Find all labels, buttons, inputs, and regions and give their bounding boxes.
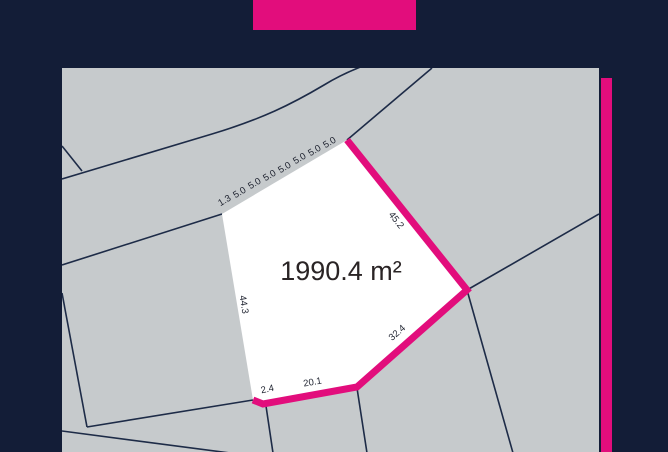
road-line-right (347, 68, 432, 140)
boundary-below-plot-left (266, 406, 273, 452)
dimension-label: 5.0 (231, 185, 248, 201)
branch-line-topleft (62, 146, 82, 171)
plot-area-label: 1990.4 m² (280, 256, 402, 286)
boundary-bottom-left (62, 431, 230, 452)
dimension-label: 5.0 (261, 168, 278, 184)
boundary-left-parcel (62, 293, 87, 427)
dimension-label: 1.3 (216, 193, 233, 209)
location-title: الجنبية (253, 0, 416, 10)
location-banner: الجنبية (253, 0, 416, 30)
boundary-below-plot-right (467, 290, 513, 452)
cadastral-map: 1.3 5.0 5.0 5.0 5.0 5.0 5.0 5.0 45.2 32.… (62, 68, 599, 452)
boundary-to-plot-bottomleft (87, 400, 253, 427)
side-accent-bar (601, 78, 612, 452)
parcel-map-svg: 1.3 5.0 5.0 5.0 5.0 5.0 5.0 5.0 45.2 32.… (62, 68, 599, 452)
dimension-label: 5.0 (246, 176, 263, 192)
ad-canvas: 1.3 5.0 5.0 5.0 5.0 5.0 5.0 5.0 45.2 32.… (0, 0, 668, 452)
boundary-right-of-plot (467, 214, 599, 290)
boundary-to-plot-topleft (62, 214, 222, 265)
boundary-below-plot-mid (357, 388, 367, 452)
